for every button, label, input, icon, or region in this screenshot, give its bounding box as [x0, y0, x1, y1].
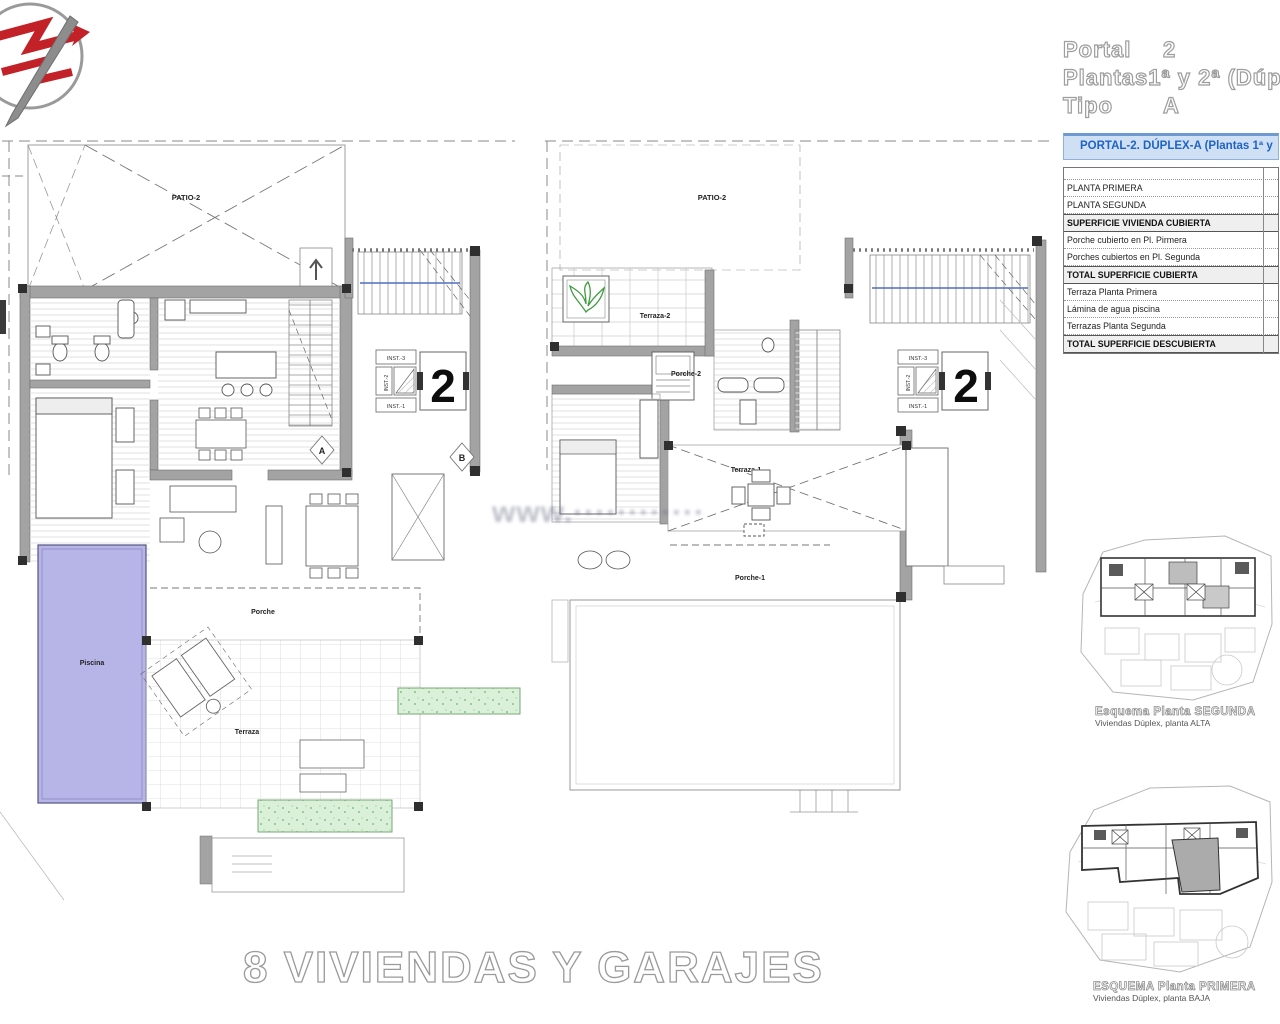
terraza-2-area: Terraza-2 — [552, 268, 712, 348]
site-key-caption-segunda: Esquema Planta SEGUNDA Viviendas Dúplex,… — [1095, 706, 1256, 728]
bedroom — [552, 394, 660, 569]
table-row — [1064, 168, 1278, 180]
surrounding-units — [1105, 628, 1255, 690]
title-tipo-label: Tipo — [1063, 92, 1163, 120]
swimming-pool: Piscina — [38, 545, 146, 803]
up-arrow-icon — [300, 248, 332, 288]
patio-2-area: PATIO-2 — [28, 145, 345, 290]
inst1-label: INST.-1 — [909, 404, 927, 410]
building-outline — [1101, 558, 1255, 616]
svg-text:A: A — [319, 446, 326, 456]
porch-area: Porche — [150, 588, 420, 640]
kitchen-table — [196, 408, 246, 460]
table-row: PLANTA PRIMERA — [1064, 180, 1278, 197]
porche-label: Porche — [251, 609, 275, 616]
living-furniture — [160, 486, 358, 578]
table-title: PORTAL-2. DÚPLEX-A (Plantas 1ª y — [1063, 133, 1279, 160]
title-plantas-value: 1ª y 2ª (Dúp — [1148, 64, 1280, 92]
planter-strip — [258, 800, 392, 832]
terrace-area: Terraza — [141, 627, 420, 808]
plan-sheet: Portal2 Plantas1ª y 2ª (Dúp TipoA PORTAL… — [0, 0, 1280, 1024]
inst2-label: INST.-2 — [384, 374, 390, 391]
title-plantas-label: Plantas — [1063, 64, 1148, 92]
floor-plan-planta-primera: PATIO-2 — [0, 130, 525, 910]
patio-2-label: PATIO-2 — [698, 193, 726, 202]
unit-number: 2 — [430, 360, 456, 412]
site-key-subtitle: Viviendas Dúplex, planta BAJA — [1093, 993, 1256, 1003]
watermark: www.············ — [492, 496, 812, 530]
interior-stair — [289, 300, 332, 426]
shaft-box — [392, 474, 444, 560]
site-key-subtitle: Viviendas Dúplex, planta ALTA — [1095, 718, 1256, 728]
title-tipo-value: A — [1163, 92, 1273, 120]
table-row: Lámina de agua piscina — [1064, 301, 1278, 318]
terraza-label: Terraza — [235, 729, 259, 736]
site-key-caption-primera: ESQUEMA Planta PRIMERA Viviendas Dúplex,… — [1093, 981, 1256, 1003]
title-portal-value: 2 — [1163, 36, 1273, 64]
site-key-title: ESQUEMA Planta PRIMERA — [1093, 981, 1256, 993]
table-body: PLANTA PRIMERA PLANTA SEGUNDA SUPERFICIE… — [1063, 167, 1279, 354]
unit-number: 2 — [953, 360, 979, 412]
porche-1-label: Porche-1 — [735, 575, 765, 582]
table-value-column-divider — [1263, 168, 1264, 353]
architect-logo — [0, 0, 112, 136]
table-row: PLANTA SEGUNDA — [1064, 197, 1278, 214]
terraza-2-label: Terraza-2 — [640, 313, 671, 320]
inst3-label: INST.-3 — [387, 356, 405, 362]
table-row: Porche cubierto en Pl. Pirmera — [1064, 232, 1278, 249]
title-portal-label: Portal — [1063, 36, 1163, 64]
inst1-label: INST.-1 — [387, 404, 405, 410]
porche-2-label: Porche-2 — [671, 371, 701, 378]
table-row: Terraza Planta Primera — [1064, 284, 1278, 301]
table-row-total: SUPERFICIE VIVIENDA CUBIERTA — [1064, 214, 1278, 232]
lower-terrace — [552, 600, 900, 812]
piscina-label: Piscina — [80, 660, 105, 667]
plant-icon — [563, 276, 609, 322]
planter-strip — [398, 688, 520, 714]
communal-stair — [352, 250, 470, 316]
site-key-title: Esquema Planta SEGUNDA — [1095, 706, 1256, 718]
site-key-planta-segunda — [1075, 532, 1275, 704]
table-row-total: TOTAL SUPERFICIE CUBIERTA — [1064, 266, 1278, 284]
inst-block: INST.-3 INST.-2 INST.-1 2 — [898, 350, 991, 412]
right-structures — [906, 300, 1036, 584]
svg-text:B: B — [459, 453, 466, 463]
title-block: Portal2 Plantas1ª y 2ª (Dúp TipoA — [1063, 36, 1273, 120]
table-row: Porches cubiertos en Pl. Segunda — [1064, 249, 1278, 266]
table-row-total: TOTAL SUPERFICIE DESCUBIERTA — [1064, 335, 1278, 353]
surface-summary-table: PORTAL-2. DÚPLEX-A (Plantas 1ª y PLANTA … — [1063, 133, 1279, 354]
patio-2-label: PATIO-2 — [172, 193, 200, 202]
inst3-label: INST.-3 — [909, 356, 927, 362]
building-outline — [1082, 822, 1258, 894]
table-row: Terrazas Planta Segunda — [1064, 318, 1278, 335]
project-title: 8 VIVIENDAS Y GARAJES — [243, 943, 824, 993]
inst2-label: INST.-2 — [906, 374, 912, 391]
bathrooms — [714, 330, 790, 430]
inst-block: INST.-3 INST.-2 INST.-1 2 — [376, 350, 469, 412]
site-key-planta-primera — [1060, 782, 1275, 977]
